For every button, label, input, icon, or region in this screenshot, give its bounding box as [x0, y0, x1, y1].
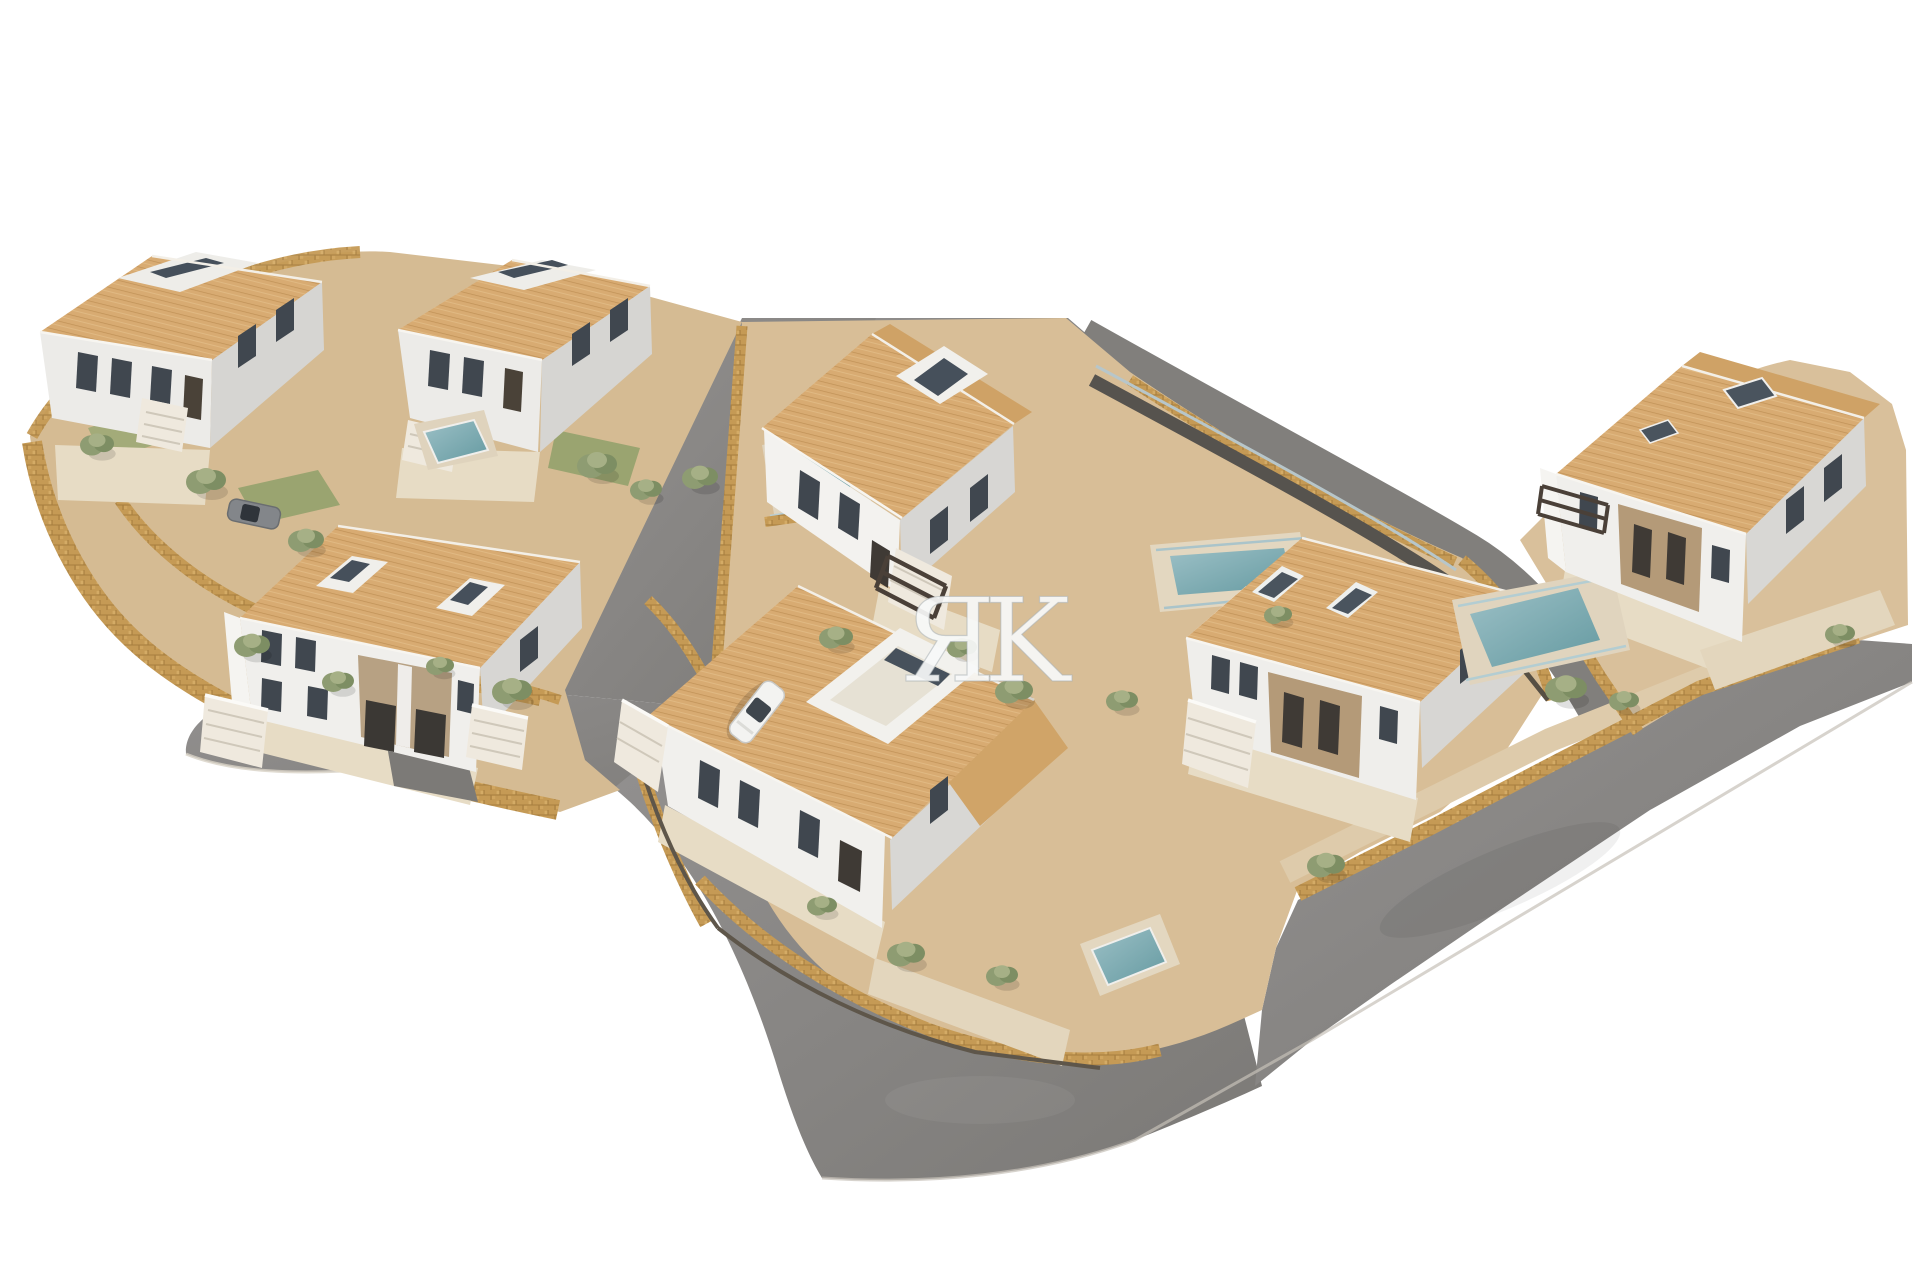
render-canvas: ЯK: [0, 0, 1920, 1280]
villa-3-pillar: [396, 664, 412, 748]
villa-6-door: [1282, 692, 1304, 748]
road-texture-patch: [885, 1076, 1075, 1124]
villa-6-window: [1379, 706, 1398, 744]
bush: [1545, 675, 1589, 709]
villa-6-door: [1318, 700, 1340, 755]
villa-7-door: [1632, 524, 1652, 578]
villa-7-window: [1711, 545, 1730, 583]
villa-3-garage-door: [364, 700, 396, 752]
villa-1-window: [150, 366, 172, 404]
villa-3-window: [295, 637, 316, 672]
watermark-logo: ЯK: [902, 574, 1073, 709]
villa-1-window: [110, 358, 132, 398]
villa-2-window: [462, 357, 484, 397]
villa-6-window: [1239, 662, 1258, 700]
villa-2-window: [428, 350, 450, 390]
development-render: ЯK: [0, 0, 1920, 1280]
patio-villa-1: [55, 445, 210, 505]
villa-7-door: [1666, 532, 1686, 585]
villa-3-garage-door: [414, 709, 446, 758]
villa-3-window: [261, 678, 282, 712]
villa-6-window: [1211, 655, 1230, 694]
villa-3-window: [307, 686, 328, 720]
villa-3-window: [457, 680, 474, 714]
villa-2-door: [503, 368, 523, 412]
villa-1-window: [76, 352, 98, 392]
